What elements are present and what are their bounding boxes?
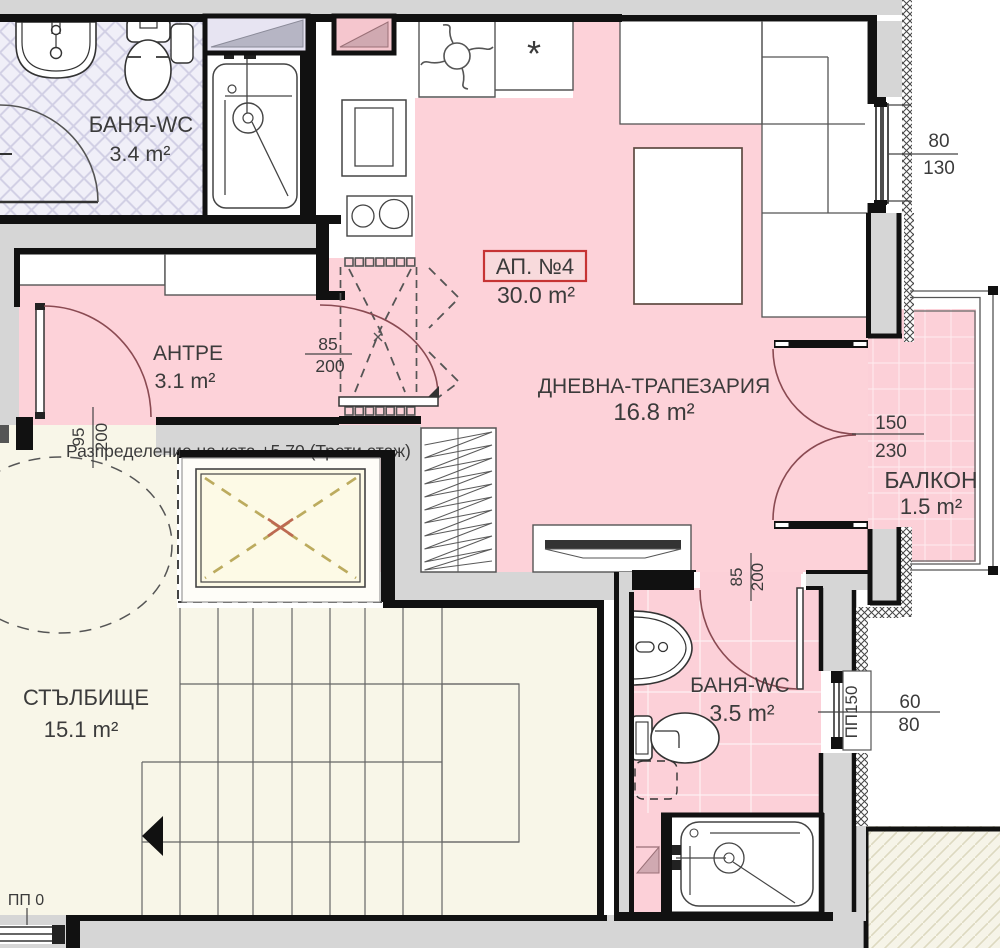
svg-text:ПП 0: ПП 0 <box>8 892 44 909</box>
svg-text:200: 200 <box>748 563 767 591</box>
svg-text:95: 95 <box>69 428 88 447</box>
svg-text:16.8 m²: 16.8 m² <box>613 399 694 426</box>
svg-text:15.1 m²: 15.1 m² <box>44 717 119 742</box>
svg-text:80: 80 <box>898 715 919 736</box>
svg-text:АНТРЕ: АНТРЕ <box>153 342 223 365</box>
svg-text:БАНЯ-WC: БАНЯ-WC <box>690 674 790 697</box>
svg-text:200: 200 <box>315 356 344 376</box>
svg-text:85: 85 <box>727 568 746 587</box>
svg-text:230: 230 <box>875 441 907 462</box>
svg-text:1.5 m²: 1.5 m² <box>900 494 962 519</box>
svg-text:АП. №4: АП. №4 <box>496 254 574 279</box>
svg-text:*: * <box>527 33 541 74</box>
svg-text:ДНЕВНА-ТРАПЕЗАРИЯ: ДНЕВНА-ТРАПЕЗАРИЯ <box>538 375 770 398</box>
svg-text:3.1 m²: 3.1 m² <box>155 369 216 393</box>
svg-text:СТЪЛБИЩЕ: СТЪЛБИЩЕ <box>23 685 149 710</box>
svg-text:БАНЯ-WC: БАНЯ-WC <box>89 112 193 137</box>
svg-text:150: 150 <box>875 413 907 434</box>
svg-text:200: 200 <box>92 423 111 451</box>
svg-text:85: 85 <box>318 334 337 354</box>
svg-text:80: 80 <box>928 131 949 152</box>
svg-text:3.4 m²: 3.4 m² <box>110 142 171 166</box>
svg-text:БАЛКОН: БАЛКОН <box>884 467 977 493</box>
svg-text:130: 130 <box>923 158 955 179</box>
svg-text:3.5 m²: 3.5 m² <box>709 700 775 726</box>
svg-text:30.0 m²: 30.0 m² <box>497 282 575 308</box>
svg-text:60: 60 <box>899 692 920 713</box>
